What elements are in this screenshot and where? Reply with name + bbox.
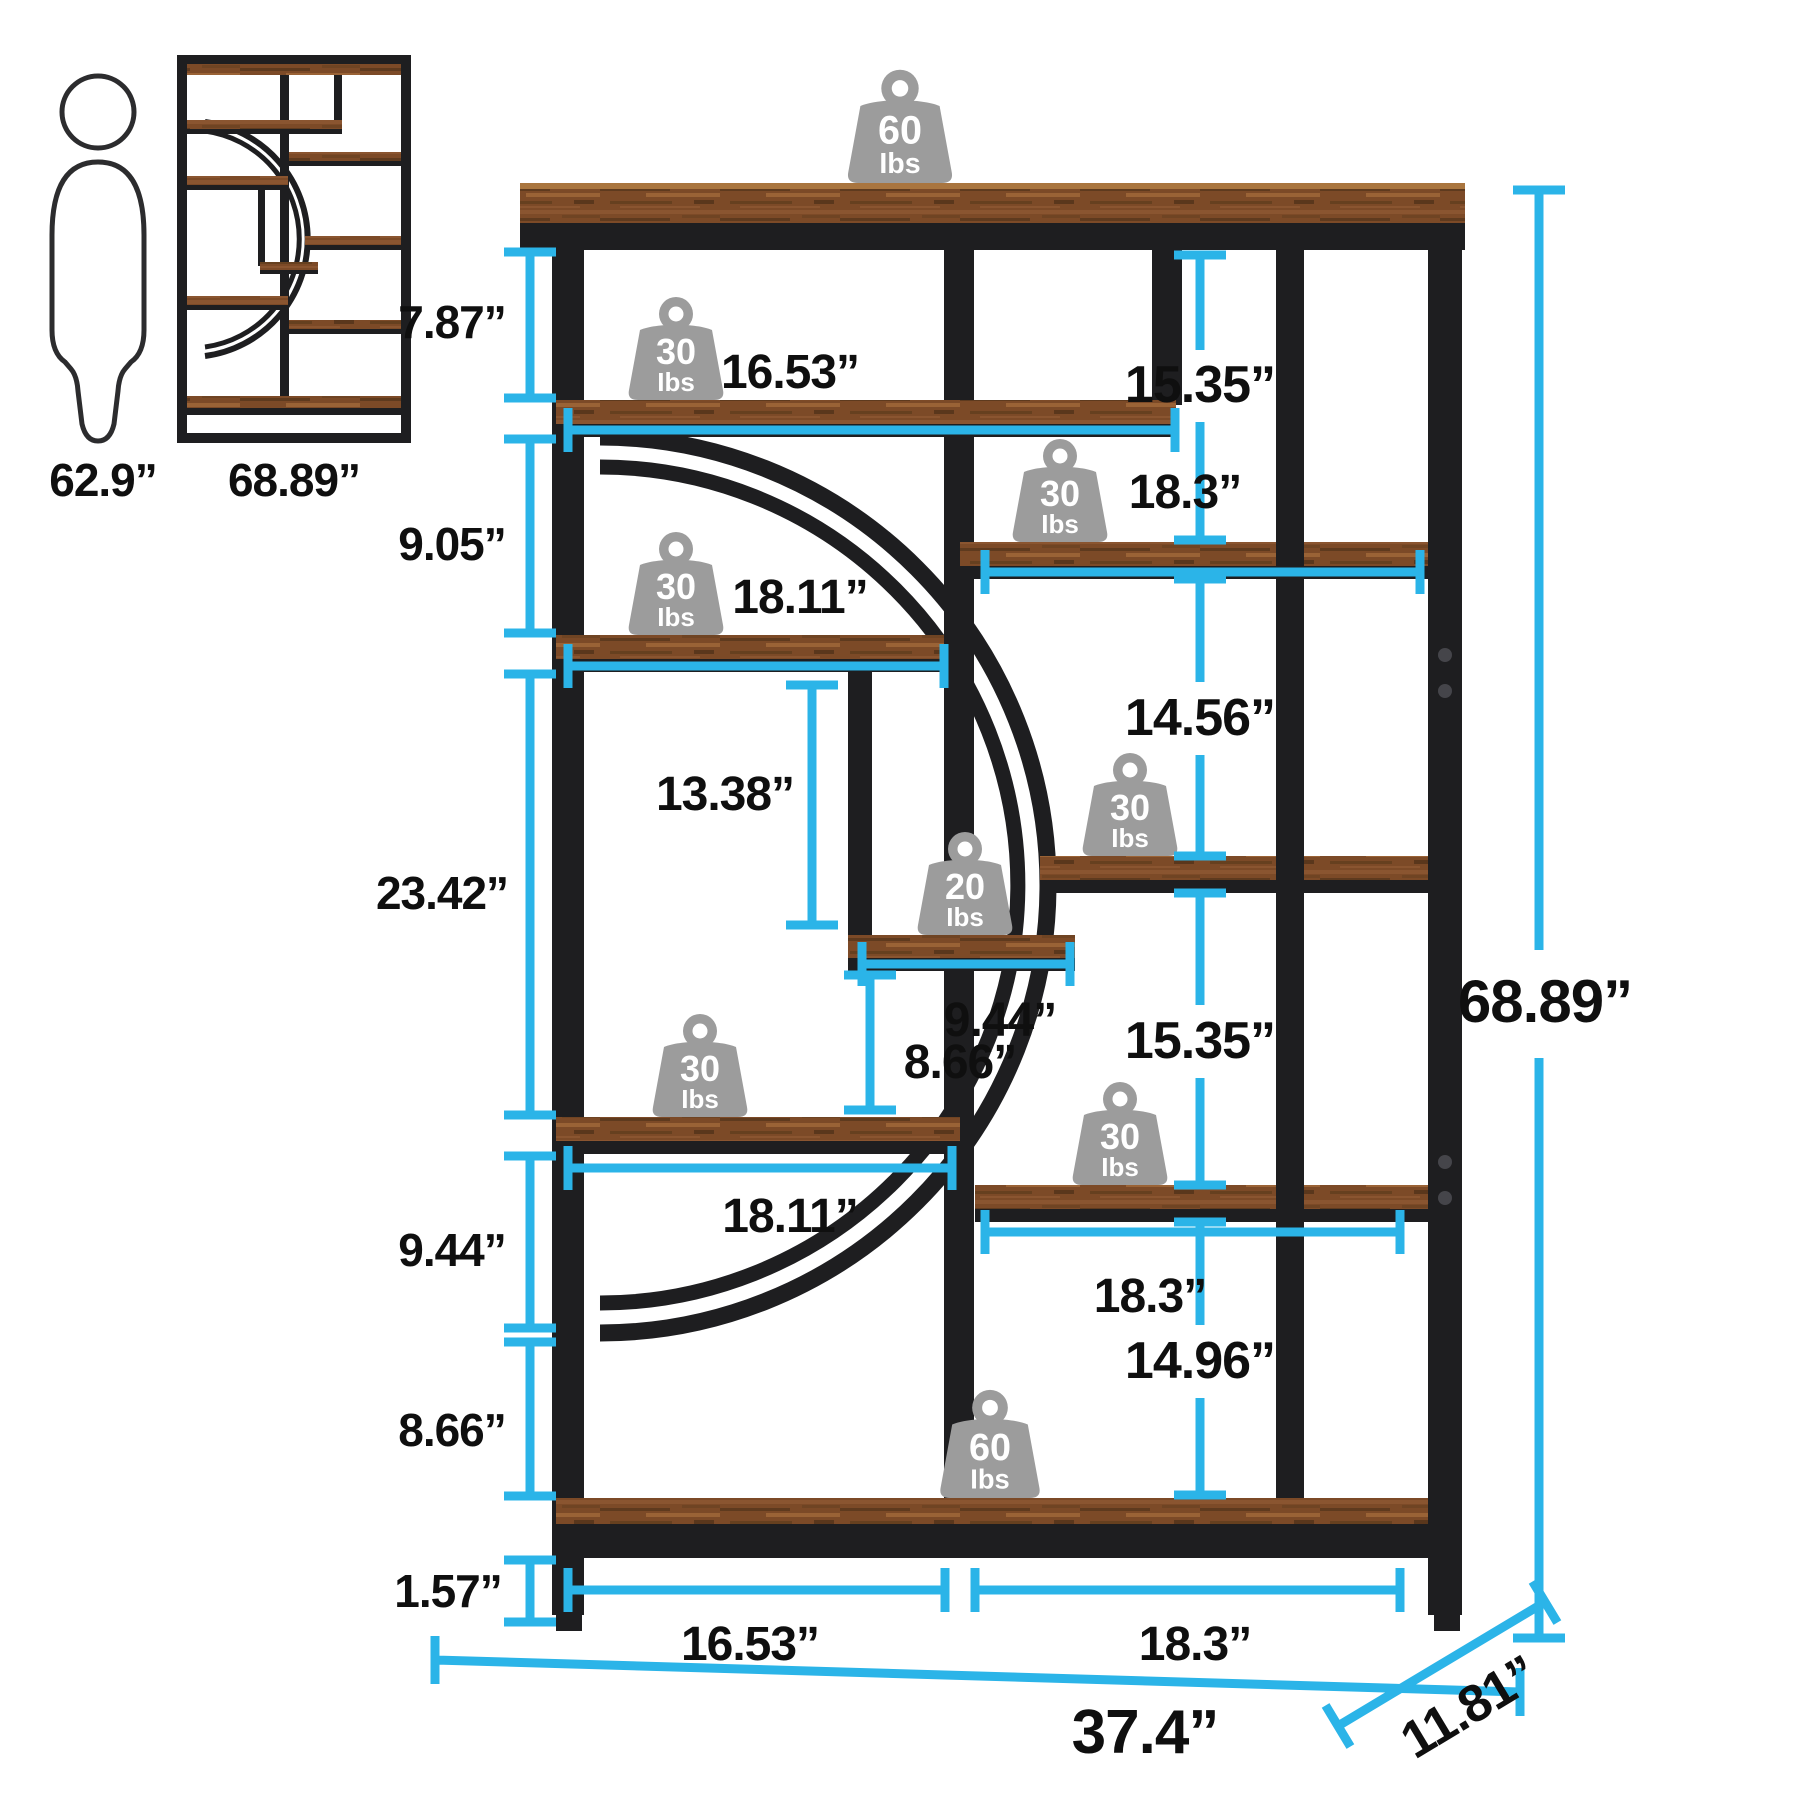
right-foot (1434, 1615, 1460, 1631)
weight-top-board: 60 Ibs (848, 70, 952, 183)
weight-unit: Ibs (657, 602, 695, 632)
weight-value: 30 (1100, 1116, 1140, 1157)
person-icon (52, 76, 144, 441)
mini-small-shelf-rim (260, 270, 318, 274)
mini-right-shelves (289, 152, 401, 334)
mini-foot-right (389, 433, 400, 440)
weight-unit: Ibs (946, 902, 984, 932)
person-height-label: 62.9” (49, 454, 157, 506)
left-foot (556, 1615, 582, 1631)
diagram-svg: 62.9” 68.89” (0, 0, 1800, 1800)
mini-foot-left (188, 433, 199, 440)
weight-unit: Ibs (1111, 823, 1149, 853)
dim-line-left-7.87 (504, 252, 556, 398)
dim-line-bottom-18.3 (975, 1568, 1400, 1612)
dim-line-bottom-16.53 (568, 1568, 945, 1612)
dim-line-overall-height (1513, 190, 1565, 1638)
weight-unit: Ibs (657, 367, 695, 397)
person-head (62, 76, 134, 148)
weight-mid-left-shelf: 30 Ibs (629, 532, 724, 635)
mini-bookshelf (182, 60, 406, 440)
label-right-15.35-top: 15.35” (1125, 356, 1275, 414)
weight-lower-right-shelf: 30 Ibs (1073, 1082, 1168, 1185)
weight-lower-left-shelf: 30 Ibs (653, 1014, 748, 1117)
dim-line-left-8.66 (504, 1342, 556, 1496)
label-left-7.87: 7.87” (398, 296, 506, 348)
label-inner-8.66: 8.66” (904, 1036, 1016, 1089)
weight-unit: Ibs (970, 1464, 1009, 1495)
weight-unit: Ibs (1041, 509, 1079, 539)
shelf-lower-right (975, 1185, 1430, 1222)
label-right-14.56: 14.56” (1125, 689, 1275, 747)
label-bottom-16.53: 16.53” (681, 1618, 819, 1671)
weight-upper-left-shelf: 30 Ibs (629, 297, 724, 400)
mini-top-board (187, 64, 401, 75)
dim-line-overall-width (435, 1636, 1520, 1716)
label-overall-width: 37.4” (1072, 1698, 1219, 1767)
dim-line-inner-8.66 (844, 975, 896, 1110)
weight-unit: Ibs (879, 148, 920, 180)
weight-upper-right-shelf: 30 Ibs (1013, 439, 1108, 542)
product-dimension-diagram: 62.9” 68.89” (0, 0, 1800, 1800)
weight-value: 60 (878, 108, 922, 152)
label-left-9.05: 9.05” (398, 518, 506, 570)
weight-value: 30 (1040, 473, 1080, 514)
weight-center-small-shelf: 20 Ibs (918, 832, 1013, 935)
label-width-18.11-lower: 18.11” (722, 1190, 857, 1243)
mini-bottom-rim (187, 408, 401, 415)
weight-unit: Ibs (681, 1084, 719, 1114)
shelf-lower-left (556, 1117, 960, 1154)
mini-bottom-board (187, 396, 401, 408)
label-overall-height: 68.89” (1458, 968, 1632, 1035)
weight-value: 30 (680, 1048, 720, 1089)
label-right-14.96: 14.96” (1125, 1332, 1275, 1390)
weight-unit: Ibs (1101, 1152, 1139, 1182)
label-left-1.57: 1.57” (394, 1565, 502, 1617)
right-rail (1428, 245, 1462, 1615)
label-depth-11.81: 11.81” (1391, 1645, 1547, 1771)
weight-value: 30 (656, 331, 696, 372)
mini-small-shelf (260, 262, 318, 270)
inner-post (848, 672, 872, 942)
bottom-board (556, 1498, 1430, 1558)
label-left-23.42: 23.42” (376, 867, 508, 919)
top-board (520, 183, 1465, 250)
weight-value: 20 (945, 866, 985, 907)
label-left-8.66: 8.66” (398, 1404, 506, 1456)
dim-line-left-23.42 (504, 674, 556, 1115)
weight-value: 30 (1110, 787, 1150, 828)
label-width-18.3-lower: 18.3” (1094, 1270, 1206, 1323)
label-width-18.3-upper: 18.3” (1129, 466, 1241, 519)
front-posts (1276, 245, 1462, 1615)
mini-short-post (334, 75, 342, 123)
label-width-18.11-mid: 18.11” (732, 571, 867, 624)
weight-mid-right-shelf: 30 Ibs (1083, 753, 1178, 856)
front-right-post (1276, 245, 1304, 1498)
weight-value: 30 (656, 566, 696, 607)
dim-line-left-9.44 (504, 1156, 556, 1328)
label-bottom-18.3: 18.3” (1139, 1618, 1251, 1671)
mini-unit-height-label: 68.89” (228, 454, 360, 506)
mini-inner-post (258, 190, 265, 266)
person-body (52, 162, 144, 441)
dim-line-left-9.05 (504, 439, 556, 633)
shelf-mid-right (1040, 856, 1430, 893)
label-inner-13.38: 13.38” (656, 768, 794, 821)
dim-line-left-1.57 (504, 1560, 556, 1622)
label-width-16.53: 16.53” (721, 346, 859, 399)
label-left-9.44: 9.44” (398, 1224, 506, 1276)
label-right-15.35-bottom: 15.35” (1125, 1012, 1275, 1070)
